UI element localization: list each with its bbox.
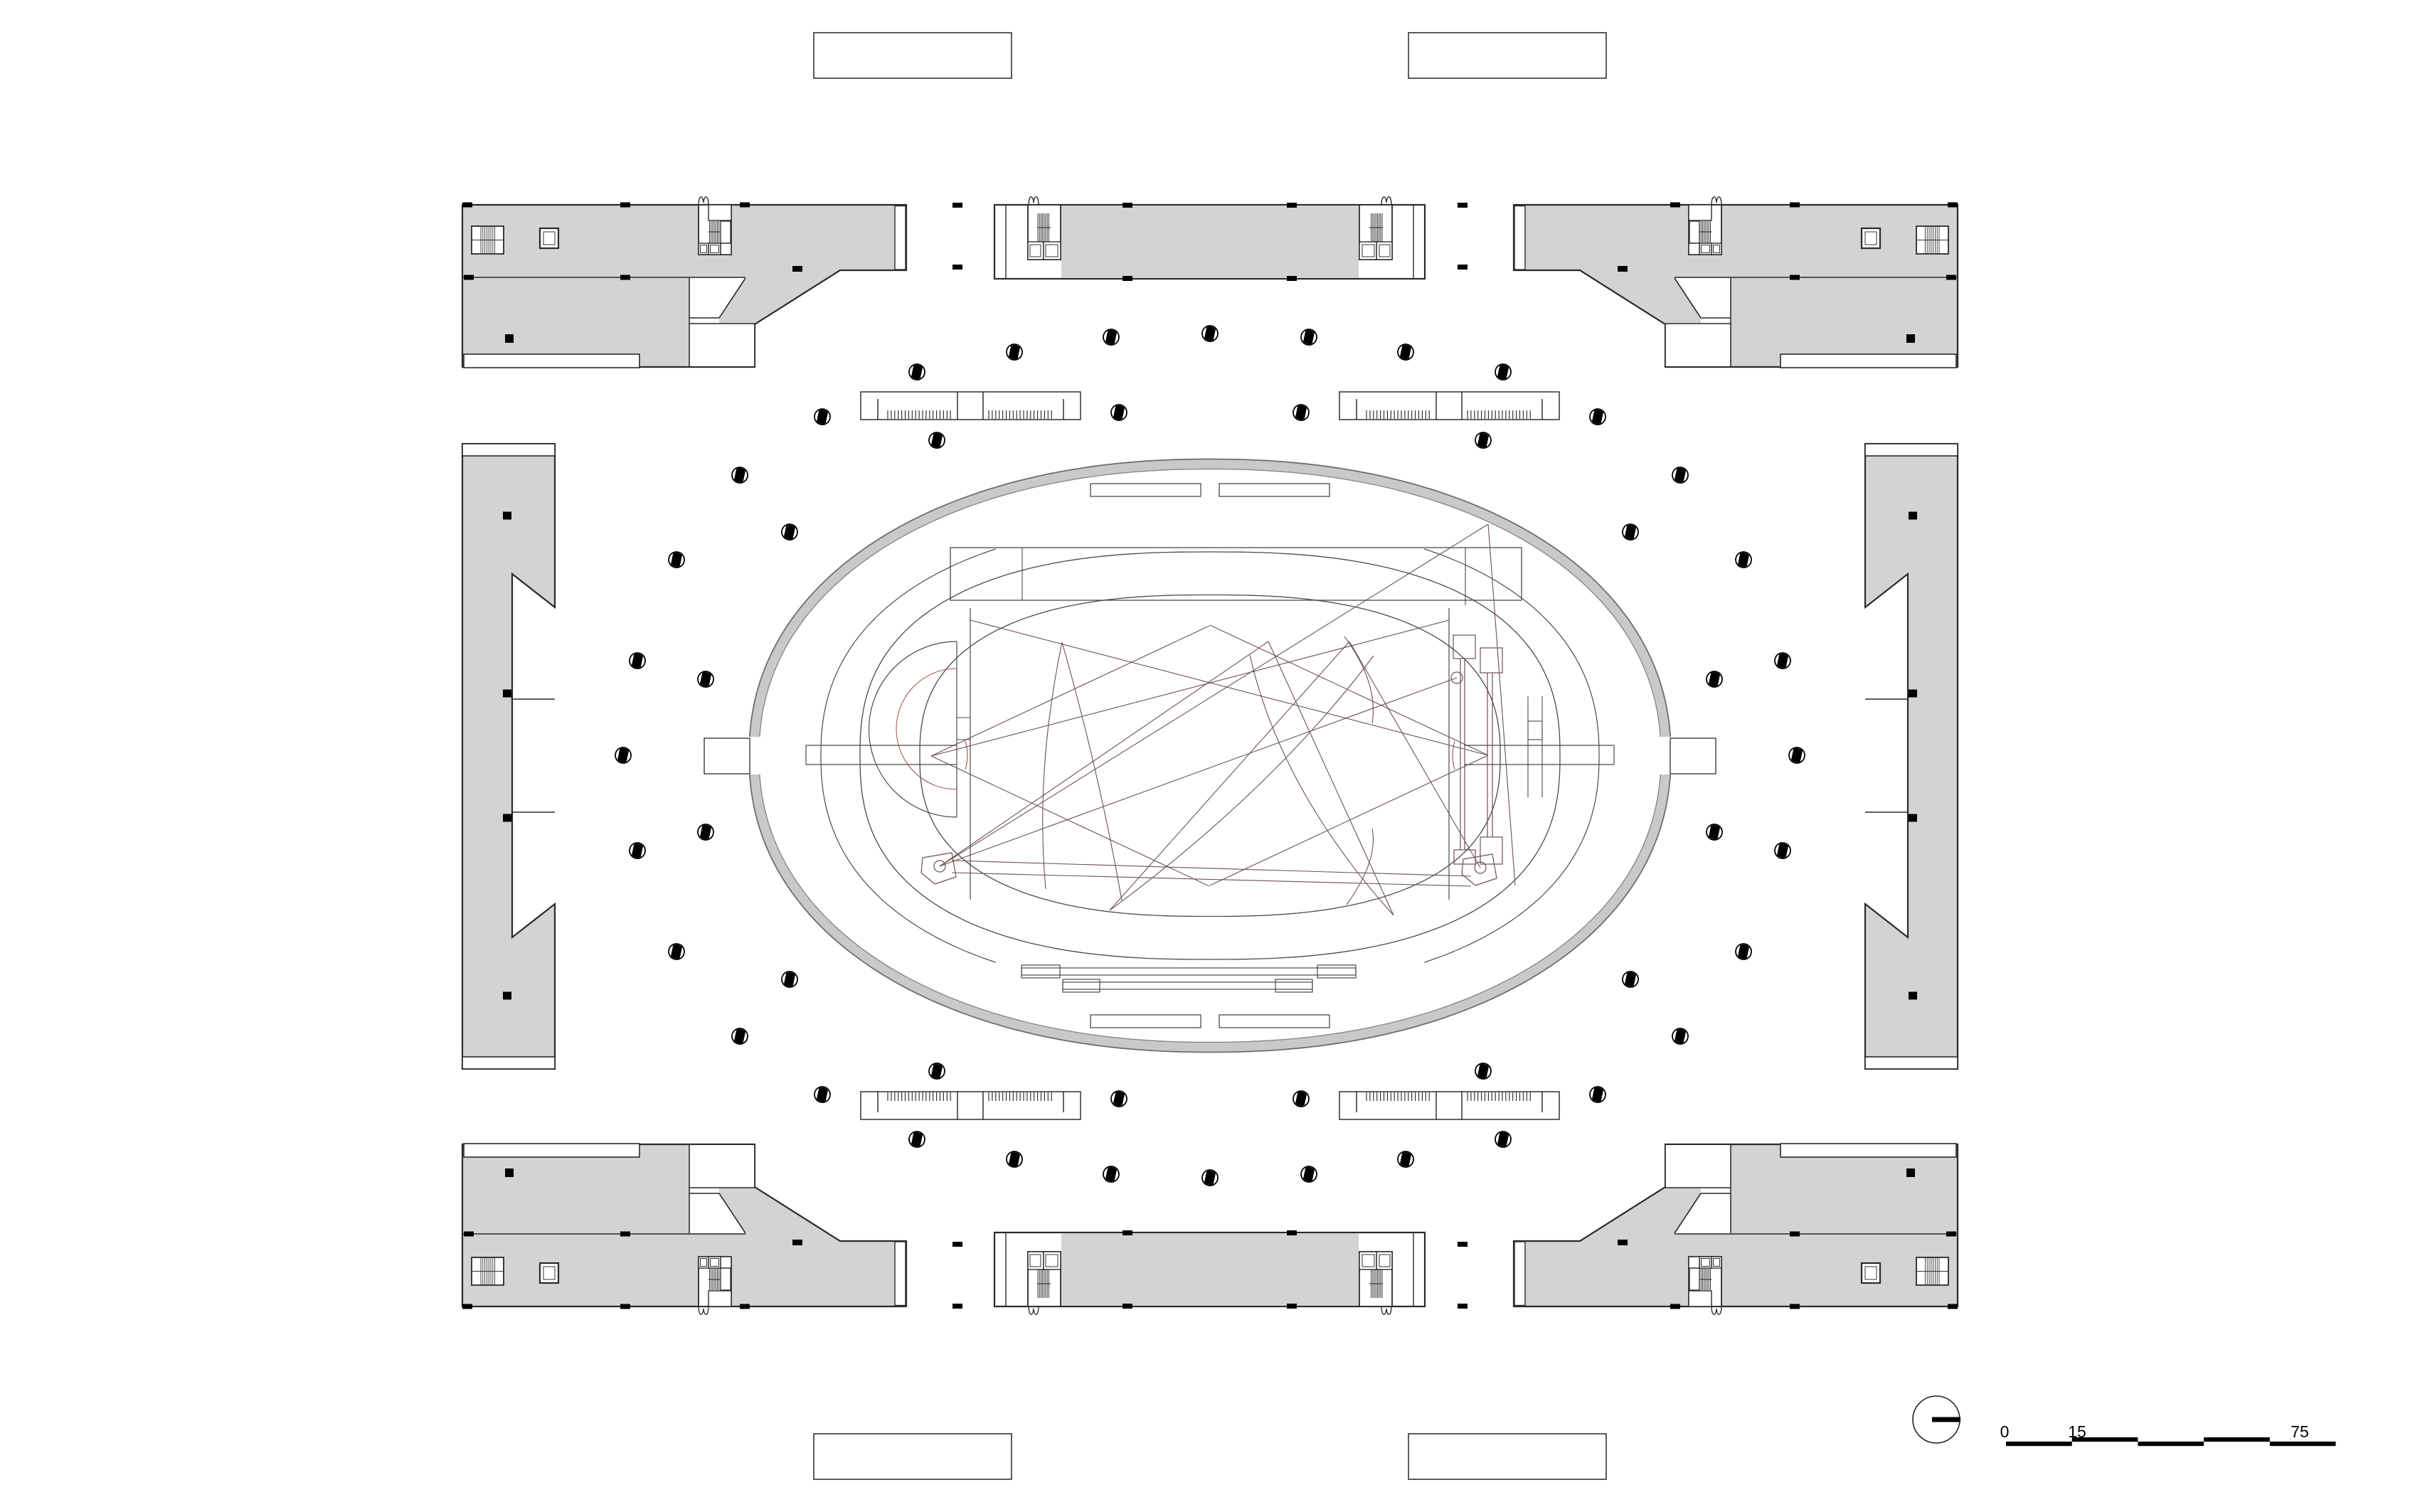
svg-text:75: 75 (2291, 1422, 2309, 1441)
svg-text:0: 0 (2000, 1422, 2010, 1441)
svg-text:15: 15 (2068, 1422, 2086, 1441)
